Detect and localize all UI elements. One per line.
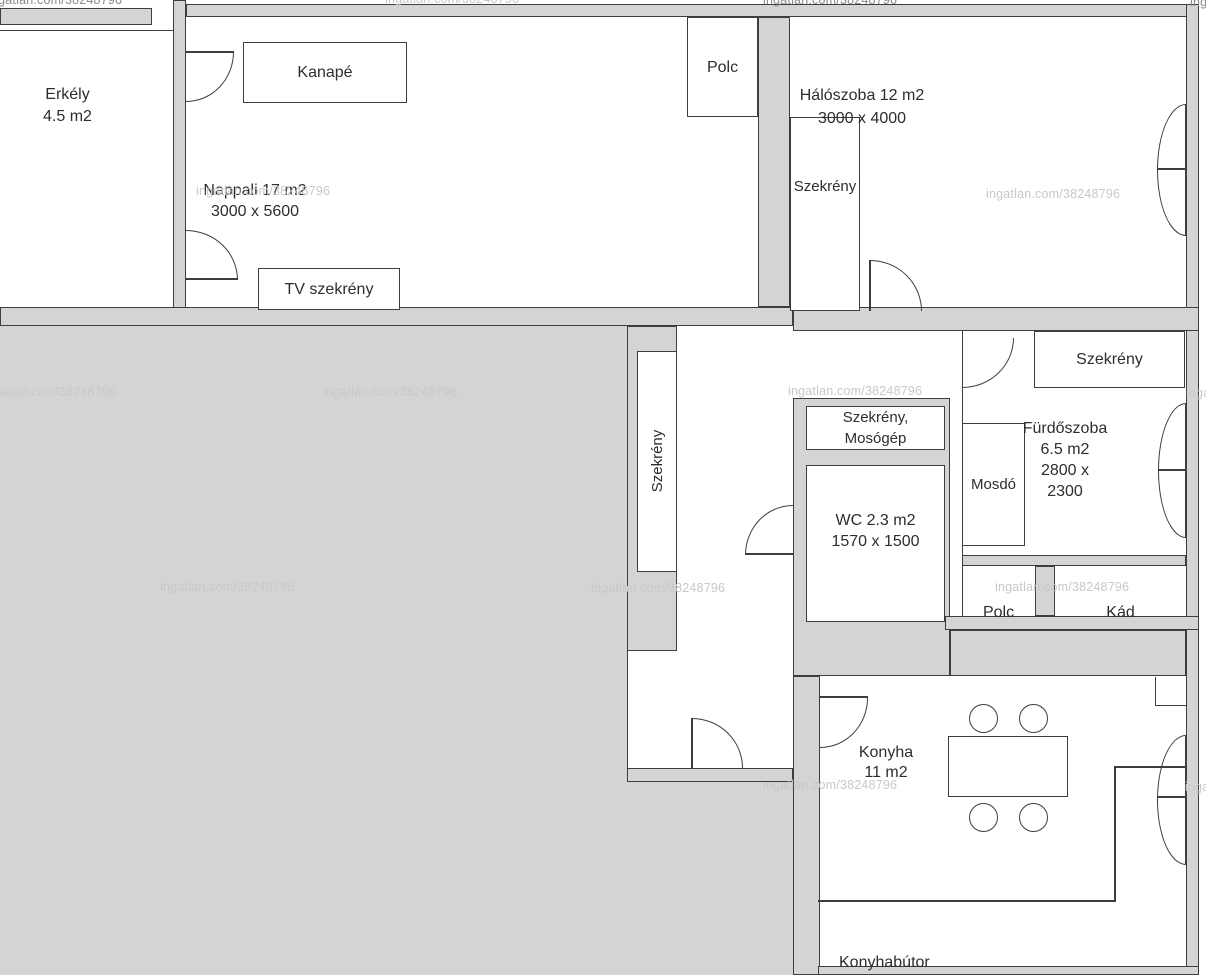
sofa-box: Kanapé <box>243 42 407 103</box>
wardrobe-bedroom-box: Szekrény <box>790 117 860 311</box>
bathroom-label: Fürdőszoba6.5 m22800 x2300 <box>975 397 1155 502</box>
window-mid-line <box>1157 796 1186 798</box>
wall-balcony-top <box>0 8 152 25</box>
shelf-top-label: Polc <box>707 57 738 78</box>
counter-line <box>818 900 1115 902</box>
watermark: ingatlan.com/38248796 <box>1190 0 1206 9</box>
wardrobe-bedroom-label: Szekrény <box>794 176 857 197</box>
room-hall-lower <box>627 651 677 768</box>
watermark: ingatlan.com/38248796 <box>788 384 922 398</box>
room-corridor-sliver <box>950 331 962 616</box>
chair-circle <box>969 803 998 832</box>
exterior-area <box>0 326 627 975</box>
wardrobe-washer-box: Szekrény,Mosógép <box>806 406 945 450</box>
tv-cabinet-label: TV szekrény <box>285 279 374 300</box>
wardrobe-bathroom-label: Szekrény <box>1076 349 1143 370</box>
shelf-top-box: Polc <box>687 17 758 117</box>
watermark: ingatlan.com/38248796 <box>1185 780 1206 794</box>
chair-circle <box>1019 803 1048 832</box>
kitchen-furniture-label: Konyhabútor <box>839 930 1039 974</box>
exterior-area <box>627 782 793 975</box>
watermark: ingatlan.com/38248796 <box>995 580 1129 594</box>
wall-notch-kitchen <box>1155 677 1186 706</box>
watermark: ingatlan.com/38248796 <box>763 0 897 7</box>
watermark: ingatlan.com/38248796 <box>0 0 122 7</box>
sofa-label: Kanapé <box>297 62 352 83</box>
watermark: ingatlan.com/38248796 <box>0 385 116 399</box>
watermark: ingatlan.com/38248796 <box>986 187 1120 201</box>
watermark: ingatlan.com/38248796 <box>1186 386 1206 400</box>
watermark: ingatlan.com/38248796 <box>160 580 294 594</box>
kitchen-table <box>948 736 1068 797</box>
chair-circle <box>1019 704 1048 733</box>
wall-top-main <box>186 4 1199 17</box>
kitchen-label: Konyha11 m2 <box>816 723 956 783</box>
window-mid-line <box>1157 168 1186 170</box>
floorplan-canvas: Kanapé TV szekrény Polc Szekrény Szekrén… <box>0 0 1206 975</box>
wardrobe-bathroom-box: Szekrény <box>1034 331 1185 388</box>
watermark: ingatlan.com/38248796 <box>196 184 330 198</box>
watermark: ingatlan.com/38248796 <box>591 581 725 595</box>
wall-right-outer <box>1186 4 1199 975</box>
wall-band-kitchen-top <box>950 630 1186 676</box>
wc-label: WC 2.3 m21570 x 1500 <box>831 510 919 552</box>
wardrobe-hall-label: Szekrény <box>647 411 667 511</box>
counter-line <box>1114 767 1116 902</box>
watermark: ingatlan.com/38248796 <box>385 0 519 6</box>
bedroom-label: Hálószoba 12 m23000 x 4000 <box>762 61 962 130</box>
room-kitchen <box>820 677 1186 966</box>
window-mid-line <box>1158 469 1186 471</box>
tv-cabinet-box: TV szekrény <box>258 268 400 310</box>
watermark: ingatlan.com/38248796 <box>323 385 457 399</box>
balcony-label: Erkély4.5 m2 <box>0 62 135 128</box>
chair-circle <box>969 704 998 733</box>
wall-bathroom-bottom <box>962 555 1186 566</box>
wardrobe-washer-label: Szekrény,Mosógép <box>843 407 909 449</box>
wall-kitchen-left <box>793 676 820 975</box>
watermark: ingatlan.com/38248796 <box>763 778 897 792</box>
wc-box: WC 2.3 m21570 x 1500 <box>806 465 945 622</box>
